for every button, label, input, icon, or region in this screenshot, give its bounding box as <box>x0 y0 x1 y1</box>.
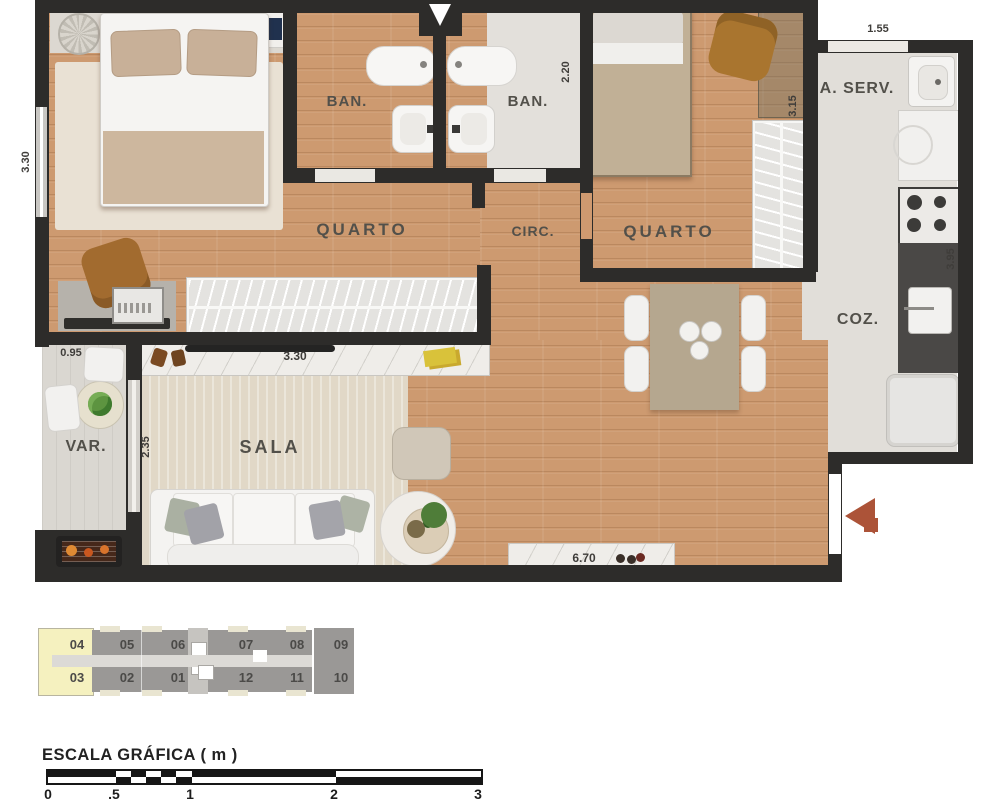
entry-door-gap <box>829 474 841 554</box>
laundry-tank <box>908 56 955 107</box>
scalebar-segment <box>336 777 481 783</box>
burner <box>907 218 921 232</box>
keyplan-unit-10: 10 <box>326 670 356 685</box>
pouf <box>392 427 451 480</box>
toilet1-seat <box>400 113 426 145</box>
kitchen-sink <box>908 287 952 334</box>
plate <box>690 341 709 360</box>
balcony-table <box>76 381 124 429</box>
window-aserv <box>828 41 908 52</box>
keyplan-unit-01: 01 <box>163 670 193 685</box>
keyplan-tab <box>142 690 162 696</box>
keyplan-tab <box>228 690 248 696</box>
bed-pillow-left <box>110 29 182 77</box>
keyplan-tab <box>100 626 120 632</box>
scalebar-tick-1: 1 <box>175 786 205 800</box>
sofa <box>150 489 375 575</box>
toilet2-flush <box>452 125 460 133</box>
dim-quarto2-depth: 3.15 <box>787 86 799 126</box>
keyplan-unit-05: 05 <box>112 637 142 652</box>
scalebar-tick-05: .5 <box>99 786 129 800</box>
dim-left-height: 3.30 <box>20 142 32 182</box>
bed-double <box>100 13 269 207</box>
dim-aserv-width: 1.55 <box>848 23 908 35</box>
room-label-coz: COZ. <box>818 311 898 329</box>
wall-right <box>958 40 973 464</box>
sideboard-decor <box>616 554 625 563</box>
wall-bedroom1-bottom <box>35 332 491 345</box>
sofa-cushion <box>233 493 295 547</box>
door-bedroom2 <box>581 193 592 239</box>
sofa-pillow <box>308 499 346 540</box>
bowl-decor <box>407 520 425 538</box>
burner <box>934 196 946 208</box>
keyplan-unit-04: 04 <box>62 637 92 652</box>
barbecue-grill <box>56 536 122 567</box>
bed-single <box>588 10 692 177</box>
keyplan-tab <box>142 626 162 632</box>
keyplan-divider <box>312 628 314 694</box>
scalebar-title: ESCALA GRÁFICA ( m ) <box>42 746 238 765</box>
bed2-sheet <box>593 43 683 64</box>
dining-chair <box>741 346 766 392</box>
keyplan-unit-09: 09 <box>326 637 356 652</box>
burner <box>907 195 922 210</box>
door-ban2 <box>494 169 546 182</box>
scalebar-segment <box>116 777 131 783</box>
toilet1 <box>392 105 439 153</box>
grill-coal <box>84 548 93 557</box>
vanity2-faucet <box>455 61 462 68</box>
wall-bottom <box>35 565 842 582</box>
wall-circ-stub <box>472 168 485 208</box>
keyplan-unit-08: 08 <box>282 637 312 652</box>
tank-drain <box>935 79 941 85</box>
room-label-circ: CIRC. <box>503 223 563 239</box>
toilet2 <box>448 105 495 153</box>
scalebar-tick-0: 0 <box>33 786 63 800</box>
keyplan-unit-07: 07 <box>231 637 261 652</box>
dim-sala-depth: 2.35 <box>140 427 152 467</box>
vanity1-faucet <box>420 61 427 68</box>
wall-bedroom1-bath <box>283 0 297 182</box>
wall-bedroom1-door-stub <box>477 265 491 335</box>
wardrobe1 <box>187 278 481 335</box>
keyplan-unit-03: 03 <box>62 670 92 685</box>
wardrobe1-rail <box>189 306 479 309</box>
wardrobe2-rail <box>780 123 783 270</box>
toilet2-seat <box>461 113 487 145</box>
scalebar-segment <box>161 771 176 777</box>
room-label-ban2: BAN. <box>498 93 558 110</box>
keyplan-corridor <box>52 655 314 667</box>
bed-pillow-right <box>186 29 258 77</box>
washing-machine <box>898 110 959 181</box>
keyplan-unit-02: 02 <box>112 670 142 685</box>
plate <box>679 321 700 342</box>
window-left <box>36 107 47 217</box>
dining-chair <box>741 295 766 341</box>
dim-ban-depth: 2.20 <box>560 52 572 92</box>
plant-decor <box>421 502 447 528</box>
grill-coal <box>100 545 109 554</box>
keyplan-unit-06: 06 <box>163 637 193 652</box>
laptop-keys <box>118 303 154 313</box>
keyplan-tab <box>286 626 306 632</box>
tank-basin <box>918 65 948 100</box>
bath-window-block <box>419 0 462 36</box>
coffee-table <box>380 491 456 567</box>
scalebar-tick-3: 3 <box>463 786 493 800</box>
room-label-quarto2: QUARTO <box>609 222 729 242</box>
fridge <box>886 374 960 447</box>
keyplan-tab <box>228 626 248 632</box>
washer-drum <box>893 125 933 165</box>
stove <box>898 187 961 245</box>
dim-var-width: 0.95 <box>46 347 96 359</box>
balcony-chair <box>44 383 82 432</box>
balcony-sliding-door <box>128 380 140 512</box>
scalebar-segment <box>146 777 161 783</box>
wall-bedroom2-bottom <box>580 268 816 282</box>
dining-chair <box>624 346 649 392</box>
grill-coal <box>66 545 77 556</box>
scalebar-segment <box>192 771 336 777</box>
bath-window-glass <box>429 4 451 26</box>
table-fan <box>58 13 100 55</box>
bed-blanket <box>103 131 264 204</box>
wardrobe2 <box>753 121 809 272</box>
wall-kitchen-bottom <box>828 452 973 464</box>
scalebar-tick-2: 2 <box>319 786 349 800</box>
laptop <box>112 287 164 324</box>
scalebar-segment <box>131 771 146 777</box>
scalebar <box>46 769 483 785</box>
door-ban1 <box>315 169 375 182</box>
plate <box>701 321 722 342</box>
room-label-sala: SALA <box>210 437 330 458</box>
keyplan-unit-12: 12 <box>231 670 261 685</box>
keyplan: 04 05 06 07 08 09 03 02 01 12 11 10 <box>38 626 358 696</box>
scalebar-segment <box>48 771 116 777</box>
room-label-var: VAR. <box>46 438 126 456</box>
burner <box>934 219 946 231</box>
dim-closet-width: 3.30 <box>265 349 325 363</box>
room-label-aserv: A. SERV. <box>807 80 907 98</box>
dim-sala-width: 6.70 <box>554 551 614 565</box>
dim-coz-depth: 3.95 <box>945 239 957 279</box>
balcony-plant <box>88 392 112 416</box>
keyplan-stair <box>198 665 214 680</box>
floorplan-canvas: QUARTO BAN. BAN. QUARTO CIRC. A. SERV. C… <box>0 0 1000 800</box>
scalebar-segment <box>176 777 192 783</box>
room-label-quarto1: QUARTO <box>302 220 422 240</box>
keyplan-tab <box>100 690 120 696</box>
keyplan-tab <box>286 690 306 696</box>
sink-faucet <box>904 307 934 310</box>
room-label-ban1: BAN. <box>317 93 377 110</box>
dining-chair <box>624 295 649 341</box>
entry-arrow-icon <box>843 496 881 538</box>
bed2-pillow <box>593 12 683 45</box>
keyplan-unit-11: 11 <box>282 670 312 685</box>
